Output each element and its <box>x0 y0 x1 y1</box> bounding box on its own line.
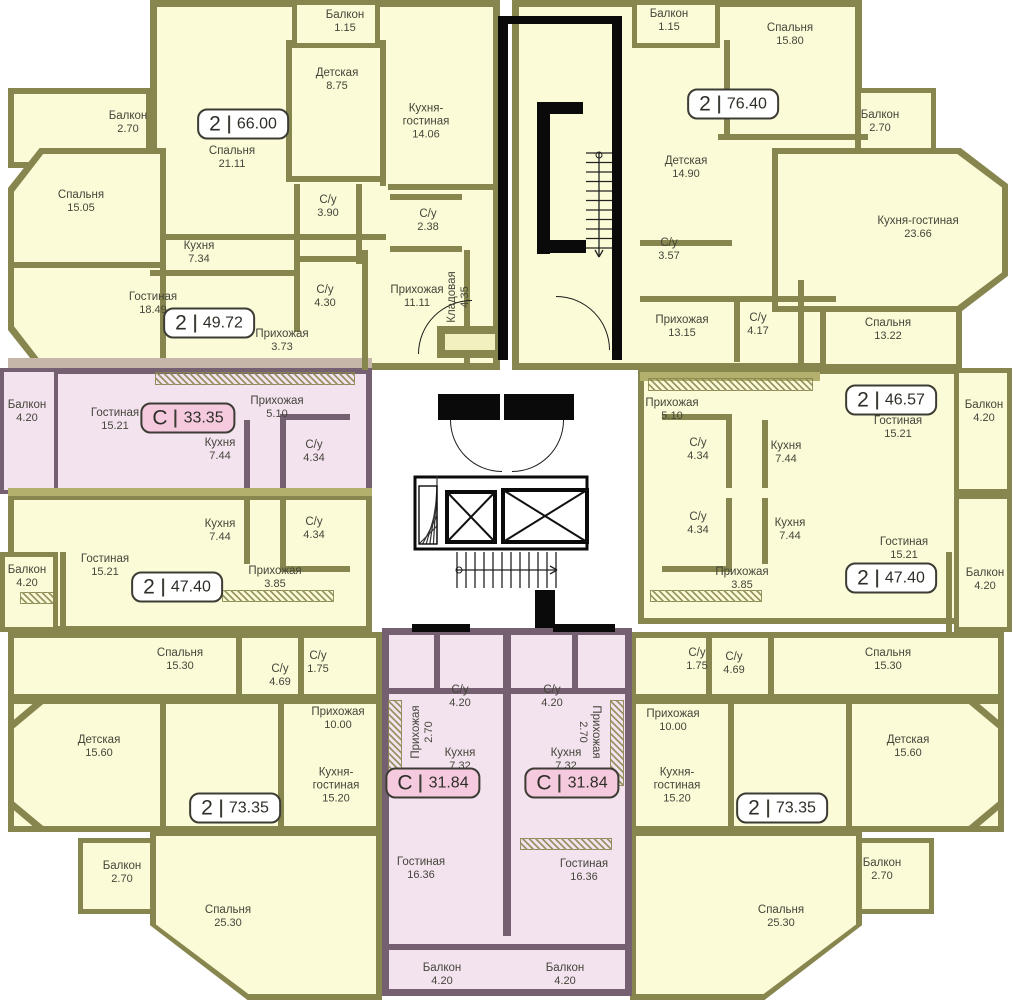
badge-divider <box>718 95 720 113</box>
core-wall <box>548 240 586 253</box>
apartment-area: 73.35 <box>229 799 269 817</box>
interior-wall <box>382 944 632 950</box>
apartment-badge[interactable]: С31.84 <box>524 768 619 799</box>
interior-wall <box>798 280 804 364</box>
core-wall <box>498 16 508 360</box>
interior-wall <box>390 246 462 252</box>
apartment-bay-floor <box>852 704 998 826</box>
apartment-type: 2 <box>699 94 711 115</box>
interior-wall <box>762 420 768 488</box>
wall-band <box>8 488 372 496</box>
apartment-type: С <box>152 408 167 429</box>
interior-wall <box>244 420 250 488</box>
interior-wall <box>150 270 298 276</box>
apartment-badge[interactable]: 247.40 <box>131 572 223 603</box>
interior-wall <box>662 566 732 572</box>
badge-divider <box>876 569 878 587</box>
core-wall <box>505 16 615 24</box>
core-wall <box>553 624 615 632</box>
apartment-area <box>630 632 1004 700</box>
balcony-area <box>632 0 720 48</box>
interior-wall <box>572 628 578 690</box>
studio-area <box>0 368 58 494</box>
badge-divider <box>420 774 422 792</box>
apartment-bay-floor <box>636 836 856 994</box>
apartment-area: 47.40 <box>885 569 925 587</box>
apartment-area: 66.00 <box>237 115 277 133</box>
interior-wall <box>280 498 286 572</box>
apartment-type: 2 <box>857 390 869 411</box>
interior-wall <box>8 262 166 268</box>
wall-band <box>8 358 372 368</box>
core-wall <box>412 624 470 632</box>
wardrobe-hatch <box>20 592 56 604</box>
interior-wall <box>380 40 386 186</box>
apartment-area: 31.84 <box>568 774 608 792</box>
floor-plan: Балкон1.15Детская8.75Спальня21.11Кухня- … <box>0 0 1012 1000</box>
badge-divider <box>876 391 878 409</box>
apartment-area: 49.72 <box>203 314 243 332</box>
interior-wall <box>280 414 286 488</box>
wardrobe-hatch <box>648 378 813 391</box>
apartment-area: 47.40 <box>171 578 211 596</box>
core-wall <box>504 394 574 420</box>
interior-wall <box>503 628 511 936</box>
interior-wall <box>726 498 732 572</box>
apartment-bay <box>630 830 862 1000</box>
apartment-badge[interactable]: 273.35 <box>189 793 281 824</box>
wardrobe-hatch <box>650 590 762 602</box>
apartment-area: 33.35 <box>184 409 224 427</box>
apartment-area: 46.57 <box>885 391 925 409</box>
interior-wall <box>280 566 350 572</box>
interior-wall <box>726 414 732 488</box>
apartment-area: 73.35 <box>776 799 816 817</box>
core-wall <box>438 394 500 420</box>
apartment-area: 31.84 <box>429 774 469 792</box>
balcony-area <box>292 0 380 48</box>
badge-divider <box>175 409 177 427</box>
apartment-bay <box>772 148 1008 312</box>
wardrobe-hatch <box>222 590 334 602</box>
interior-wall <box>640 240 732 246</box>
apartment-type: С <box>397 773 412 794</box>
apartment-bay-floor <box>14 704 160 826</box>
interior-wall <box>734 302 740 362</box>
badge-divider <box>559 774 561 792</box>
badge-divider <box>162 578 164 596</box>
balcony-area <box>954 368 1012 494</box>
apartment-area <box>8 632 382 700</box>
interior-wall <box>762 498 768 564</box>
apartment-bay-floor <box>14 154 160 364</box>
apartment-type: 2 <box>201 798 213 819</box>
apartment-bay <box>8 148 166 370</box>
interior-wall <box>286 40 292 180</box>
interior-wall <box>362 250 368 370</box>
interior-wall <box>390 194 462 200</box>
interior-wall <box>768 632 774 698</box>
wardrobe-hatch <box>520 838 612 850</box>
apartment-bay-floor <box>156 836 376 994</box>
badge-divider <box>194 314 196 332</box>
apartment-bay-floor <box>778 154 1002 306</box>
interior-wall <box>718 134 868 140</box>
apartment-bay <box>150 830 382 1000</box>
interior-wall <box>244 498 250 564</box>
interior-wall <box>286 176 382 182</box>
interior-wall <box>388 184 500 190</box>
interior-wall <box>294 256 358 262</box>
apartment-badge[interactable]: 266.00 <box>197 109 289 140</box>
interior-wall <box>298 632 304 698</box>
apartment-badge[interactable]: 246.57 <box>845 385 937 416</box>
interior-wall <box>434 628 440 690</box>
apartment-type: 2 <box>209 114 221 135</box>
badge-divider <box>767 799 769 817</box>
interior-wall <box>382 688 632 694</box>
apartment-badge[interactable]: С31.84 <box>385 768 480 799</box>
badge-divider <box>220 799 222 817</box>
apartment-badge[interactable]: 249.72 <box>163 308 255 339</box>
apartment-badge[interactable]: 247.40 <box>845 563 937 594</box>
apartment-type: 2 <box>143 577 155 598</box>
door-swing <box>512 420 564 472</box>
interior-wall <box>236 632 242 698</box>
interior-wall <box>60 552 66 632</box>
interior-wall <box>160 234 386 240</box>
wardrobe-hatch <box>155 372 355 385</box>
apartment-type: 2 <box>175 313 187 334</box>
apartment-type: 2 <box>857 568 869 589</box>
interior-wall <box>662 414 732 420</box>
interior-wall <box>946 552 952 632</box>
core-wall <box>537 102 550 254</box>
apartment-badge[interactable]: 273.35 <box>736 793 828 824</box>
apartment-badge[interactable]: С33.35 <box>140 403 235 434</box>
apartment-badge[interactable]: 276.40 <box>687 89 779 120</box>
apartment-type: С <box>536 773 551 794</box>
door-swing <box>450 420 502 472</box>
core-wall <box>535 590 555 628</box>
interior-wall <box>706 632 712 698</box>
apartment-type: 2 <box>748 798 760 819</box>
balcony-area <box>954 494 1012 632</box>
apartment-bay <box>8 698 166 832</box>
interior-wall <box>280 414 350 420</box>
interior-wall <box>728 698 734 832</box>
badge-divider <box>228 115 230 133</box>
core-wall <box>612 16 622 360</box>
apartment-area: 76.40 <box>727 95 767 113</box>
apartment-bay <box>846 698 1004 832</box>
